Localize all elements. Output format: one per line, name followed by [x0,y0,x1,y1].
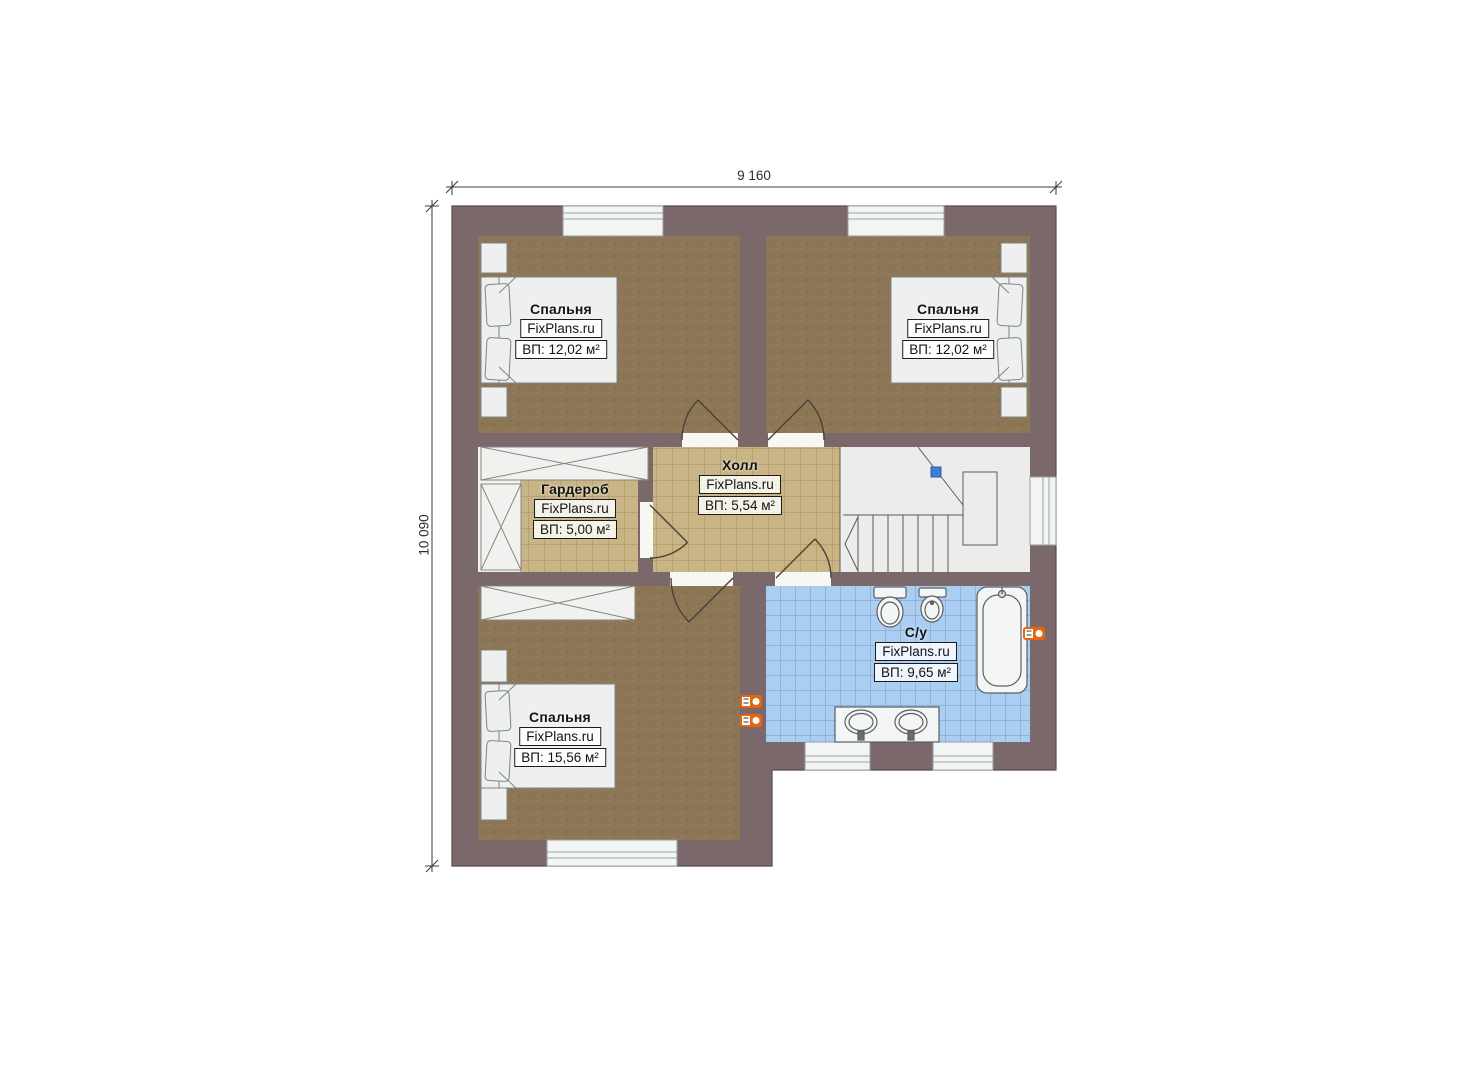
stair-marker-icon [931,467,941,477]
nightstand-icon [481,788,507,820]
nightstand-icon [481,387,507,417]
opening-bathroom [775,572,831,586]
floor-plan-page: Спальня FixPlans.ru ВП: 12,02 м² Спальня… [0,0,1474,1080]
dimension-top [446,181,1062,195]
wall-center-top [740,206,766,447]
heated-towel-rail-marker-icon [1023,627,1045,640]
window-icon [1030,477,1056,545]
closet-icon [481,447,648,480]
room-name: Спальня [514,709,606,725]
room-area: ВП: 15,56 м² [514,748,606,767]
closet-icon [481,484,521,570]
nightstand-icon [1001,243,1027,273]
window-icon [933,742,993,770]
window-icon [547,840,677,866]
watermark: FixPlans.ru [699,475,781,494]
room-area: ВП: 5,00 м² [533,520,617,539]
window-icon [805,742,870,770]
watermark: FixPlans.ru [907,319,989,338]
window-icon [563,206,663,236]
dimension-height-label: 10 090 [417,514,432,555]
room-label-bathroom: С/у FixPlans.ru ВП: 9,65 м² [874,624,958,682]
watermark: FixPlans.ru [519,727,601,746]
closet-icon [481,586,635,620]
nightstand-icon [481,243,507,273]
room-label-bedroom-bottom: Спальня FixPlans.ru ВП: 15,56 м² [514,709,606,767]
wall-bathroom-bottom [740,742,1056,770]
room-area: ВП: 12,02 м² [902,340,994,359]
opening-wardrobe [640,502,653,558]
double-sink-vanity-icon [835,707,939,742]
nightstand-icon [481,650,507,682]
watermark: FixPlans.ru [534,499,616,518]
room-area: ВП: 12,02 м² [515,340,607,359]
room-label-hall: Холл FixPlans.ru ВП: 5,54 м² [698,457,782,515]
room-name: Спальня [515,301,607,317]
heated-towel-rail-marker-icon [740,695,762,708]
room-name: Гардероб [533,481,617,497]
wall-left [452,206,478,866]
floor-stairs [840,447,1030,572]
opening-bedroom-3 [670,572,733,586]
floor-plan-drawing [0,0,1474,1080]
dimension-width-label: 9 160 [737,168,771,183]
room-label-bedroom-top-left: Спальня FixPlans.ru ВП: 12,02 м² [515,301,607,359]
heated-towel-rail-marker-icon [740,714,762,727]
room-area: ВП: 5,54 м² [698,496,782,515]
room-label-wardrobe: Гардероб FixPlans.ru ВП: 5,00 м² [533,481,617,539]
watermark: FixPlans.ru [875,642,957,661]
opening-bedroom-2 [768,433,824,447]
room-area: ВП: 9,65 м² [874,663,958,682]
window-icon [848,206,944,236]
room-name: С/у [874,624,958,640]
room-label-bedroom-top-right: Спальня FixPlans.ru ВП: 12,02 м² [902,301,994,359]
room-name: Холл [698,457,782,473]
nightstand-icon [1001,387,1027,417]
room-name: Спальня [902,301,994,317]
opening-bedroom-1 [682,433,738,447]
bathtub-icon [977,587,1027,693]
wall-mid-upper [478,433,1030,447]
watermark: FixPlans.ru [520,319,602,338]
